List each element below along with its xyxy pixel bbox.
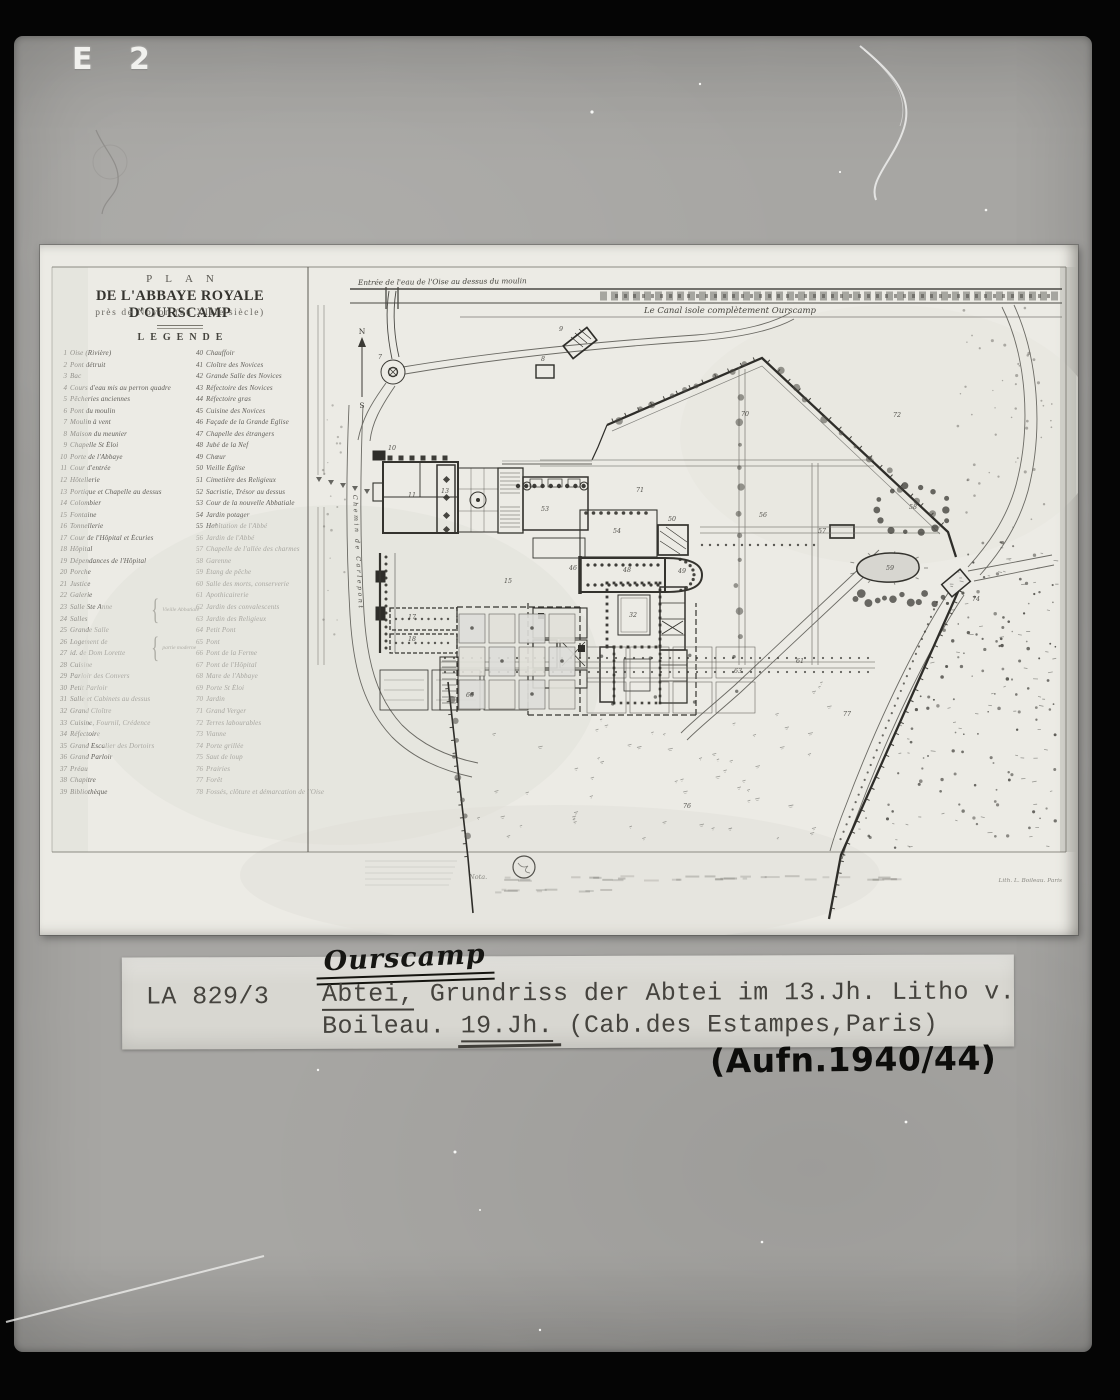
map-number: 11: [408, 492, 416, 499]
map-number: 76: [683, 803, 691, 810]
map-number: 77: [843, 711, 851, 718]
map-number: 63: [734, 668, 742, 675]
map-number: 71: [636, 487, 644, 494]
map-number: 74: [972, 596, 980, 603]
map-number: 18: [408, 636, 416, 643]
map-number: 49: [677, 568, 686, 575]
lithographer-credit: Lith. L. Boileau. Paris: [998, 878, 1062, 884]
canal-main-label: Le Canal isole complètement Ourscamp: [643, 305, 817, 316]
map-number: 53: [541, 506, 549, 513]
caption-line-1: Abtei, Grundriss der Abtei im 13.Jh. Lit…: [322, 977, 1015, 1008]
map-number: 70: [741, 411, 749, 418]
map-number: 54: [613, 528, 621, 535]
archive-photo-page: { "archive": { "corner_mark": "E 2", "la…: [0, 0, 1120, 1400]
map-number: 66: [466, 692, 474, 699]
map-number: 9: [559, 326, 563, 333]
map-number: 72: [893, 412, 901, 419]
compass: N S: [358, 327, 366, 410]
caption-line-2: Boileau. 19.Jh. (Cab.des Estampes,Paris): [322, 1010, 938, 1041]
map-number: 50: [668, 516, 676, 523]
compass-south: S: [359, 401, 364, 410]
map-number: 15: [504, 578, 512, 585]
inventory-number: LA 829/3: [146, 982, 269, 1011]
nota-label: Nota.: [468, 873, 487, 881]
map-number: 57: [818, 528, 826, 535]
map-number: 61: [796, 658, 804, 665]
map-number: 46: [568, 565, 577, 572]
handwritten-date: (Aufn.1940/44): [710, 1039, 997, 1081]
map-number: 56: [759, 512, 767, 519]
compass-north: N: [359, 327, 366, 336]
map-number: 59: [886, 565, 894, 572]
map-number: 10: [388, 445, 396, 452]
canal-entry-label: Entrée de l'eau de l'Oise au dessus du m…: [357, 276, 527, 287]
caption-strip: LA 829/3 Ourscamp Abtei, Grundriss der A…: [122, 954, 1014, 1049]
map-number: 48: [622, 567, 631, 574]
abbey-plan-map: N S: [40, 245, 1078, 935]
lithograph-photo: PLAN DE L'ABBAYE ROYALE D'OURSCAMP près …: [40, 245, 1078, 935]
map-number: 8: [541, 356, 545, 363]
map-number: 7: [378, 354, 382, 361]
map-number: 13: [441, 488, 449, 495]
map-number: 58: [909, 504, 917, 511]
map-number: 17: [408, 614, 416, 621]
map-number: 32: [629, 612, 637, 619]
corner-mark: E 2: [72, 42, 163, 77]
windmill: [381, 360, 405, 384]
